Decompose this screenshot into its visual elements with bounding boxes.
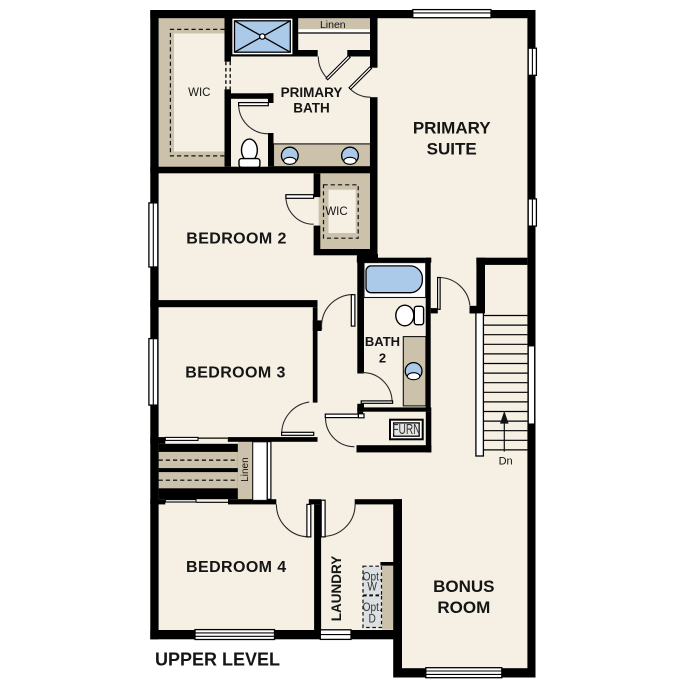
svg-text:Linen: Linen: [240, 457, 251, 481]
svg-text:SUITE: SUITE: [427, 140, 477, 159]
svg-text:W: W: [367, 581, 377, 594]
svg-text:PRIMARY: PRIMARY: [413, 119, 491, 138]
svg-text:BATH: BATH: [293, 101, 330, 116]
svg-text:BATH: BATH: [365, 334, 400, 349]
svg-text:BEDROOM 3: BEDROOM 3: [185, 364, 286, 381]
svg-text:Linen: Linen: [320, 19, 346, 31]
svg-text:WIC: WIC: [188, 87, 210, 99]
svg-text:2: 2: [379, 350, 386, 365]
svg-text:FURN: FURN: [392, 420, 420, 438]
svg-text:BEDROOM 4: BEDROOM 4: [186, 559, 287, 576]
svg-text:UPPER LEVEL: UPPER LEVEL: [155, 649, 280, 669]
svg-text:BONUS: BONUS: [433, 577, 494, 596]
svg-text:ROOM: ROOM: [437, 598, 490, 617]
svg-text:BEDROOM 2: BEDROOM 2: [186, 230, 287, 247]
svg-text:PRIMARY: PRIMARY: [281, 85, 343, 100]
svg-text:Dn: Dn: [499, 455, 513, 467]
svg-text:D: D: [369, 613, 376, 626]
svg-text:LAUNDRY: LAUNDRY: [329, 556, 344, 622]
svg-text:WIC: WIC: [325, 206, 347, 218]
